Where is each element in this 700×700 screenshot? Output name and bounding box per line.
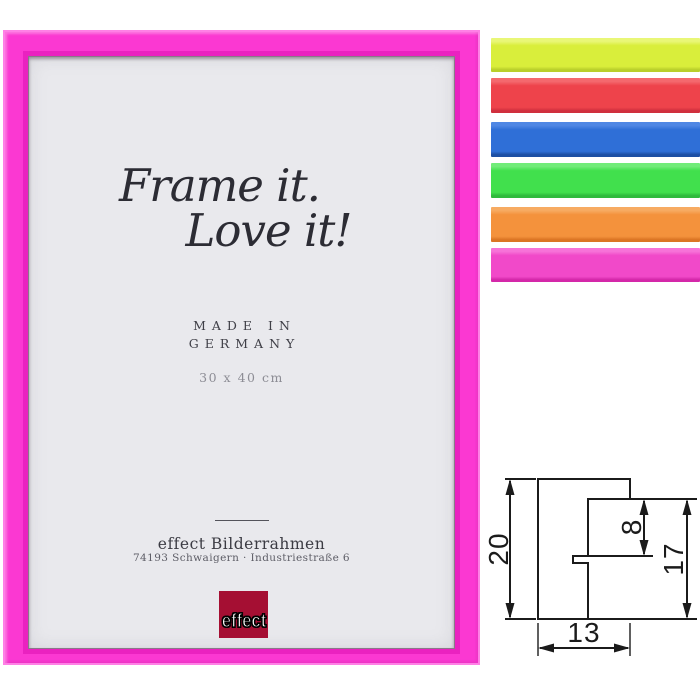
dim-label-20: 20 — [483, 532, 514, 565]
divider-line — [215, 520, 269, 521]
frame-title-line1: Frame it. — [7, 163, 432, 208]
color-swatch-neon-pink — [491, 248, 700, 282]
made-in-label-line2: GERMANY — [29, 338, 454, 351]
dim-label-8: 8 — [616, 519, 647, 536]
brand-address: 74193 Schwaigern · Industriestraße 6 — [29, 552, 454, 565]
color-swatch-neon-green — [491, 163, 700, 198]
color-swatch-blue — [491, 122, 700, 157]
effect-logo-text: effect — [215, 612, 273, 631]
frame-inner-bevel: Frame it. Love it! MADE IN GERMANY 30 x … — [23, 51, 460, 654]
effect-logo: effect — [219, 591, 268, 638]
dim-label-17: 17 — [658, 542, 689, 575]
product-image-canvas: { "product_frame": { "title_line1": "Fra… — [0, 0, 700, 700]
color-swatch-neon-yellow — [491, 38, 700, 72]
frame-mat: Frame it. Love it! MADE IN GERMANY 30 x … — [28, 56, 455, 649]
frame-title-line2: Love it! — [56, 208, 481, 253]
technical-drawing: 20 8 17 13 — [460, 450, 700, 700]
color-swatch-neon-red — [491, 78, 700, 113]
frame-size-label: 30 x 40 cm — [29, 372, 454, 385]
brand-name: effect Bilderrahmen — [29, 535, 454, 554]
picture-frame: Frame it. Love it! MADE IN GERMANY 30 x … — [3, 30, 480, 665]
color-swatch-neon-orange — [491, 207, 700, 242]
dim-label-13: 13 — [567, 617, 600, 648]
made-in-label-line1: MADE IN — [29, 320, 454, 333]
